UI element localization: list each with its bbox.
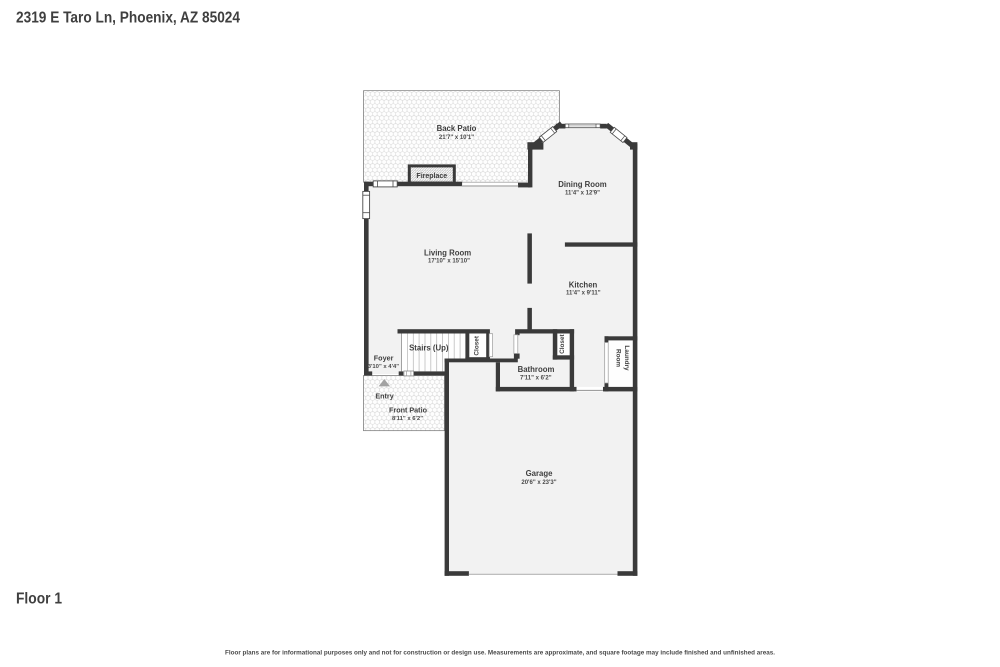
svg-text:Foyer: Foyer xyxy=(374,353,394,362)
svg-text:Front Patio: Front Patio xyxy=(389,406,428,415)
svg-text:20'6" x 23'3": 20'6" x 23'3" xyxy=(521,480,556,486)
svg-text:Stairs (Up): Stairs (Up) xyxy=(409,344,449,353)
svg-text:11'4" x 9'11": 11'4" x 9'11" xyxy=(566,290,601,296)
svg-text:2319 E Taro Ln, Phoenix, AZ 85: 2319 E Taro Ln, Phoenix, AZ 85024 xyxy=(16,10,240,27)
svg-text:17'10" x 15'10": 17'10" x 15'10" xyxy=(428,259,470,265)
svg-text:8'11" x 6'2": 8'11" x 6'2" xyxy=(392,416,423,422)
svg-text:7'11" x 6'2": 7'11" x 6'2" xyxy=(520,376,552,382)
svg-text:Living Room: Living Room xyxy=(424,248,471,257)
svg-text:Kitchen: Kitchen xyxy=(569,280,598,289)
svg-text:Floor 1: Floor 1 xyxy=(16,591,62,608)
svg-text:Garage: Garage xyxy=(526,469,554,478)
svg-text:Fireplace: Fireplace xyxy=(416,173,447,180)
svg-text:3'10" x 4'4": 3'10" x 4'4" xyxy=(368,364,400,370)
svg-text:Back Patio: Back Patio xyxy=(437,124,477,133)
svg-text:Entry: Entry xyxy=(375,391,393,400)
svg-text:Floor plans are for informatio: Floor plans are for informational purpos… xyxy=(225,650,775,657)
svg-text:Closet: Closet xyxy=(473,335,480,355)
svg-text:Dining Room: Dining Room xyxy=(558,180,607,189)
svg-text:11'4" x 12'9": 11'4" x 12'9" xyxy=(565,191,600,197)
svg-text:Room: Room xyxy=(615,349,622,367)
svg-text:Closet: Closet xyxy=(559,333,566,353)
svg-text:Bathroom: Bathroom xyxy=(518,365,555,374)
svg-text:Laundry: Laundry xyxy=(623,345,630,371)
svg-text:21'7" x 10'1": 21'7" x 10'1" xyxy=(439,135,474,141)
